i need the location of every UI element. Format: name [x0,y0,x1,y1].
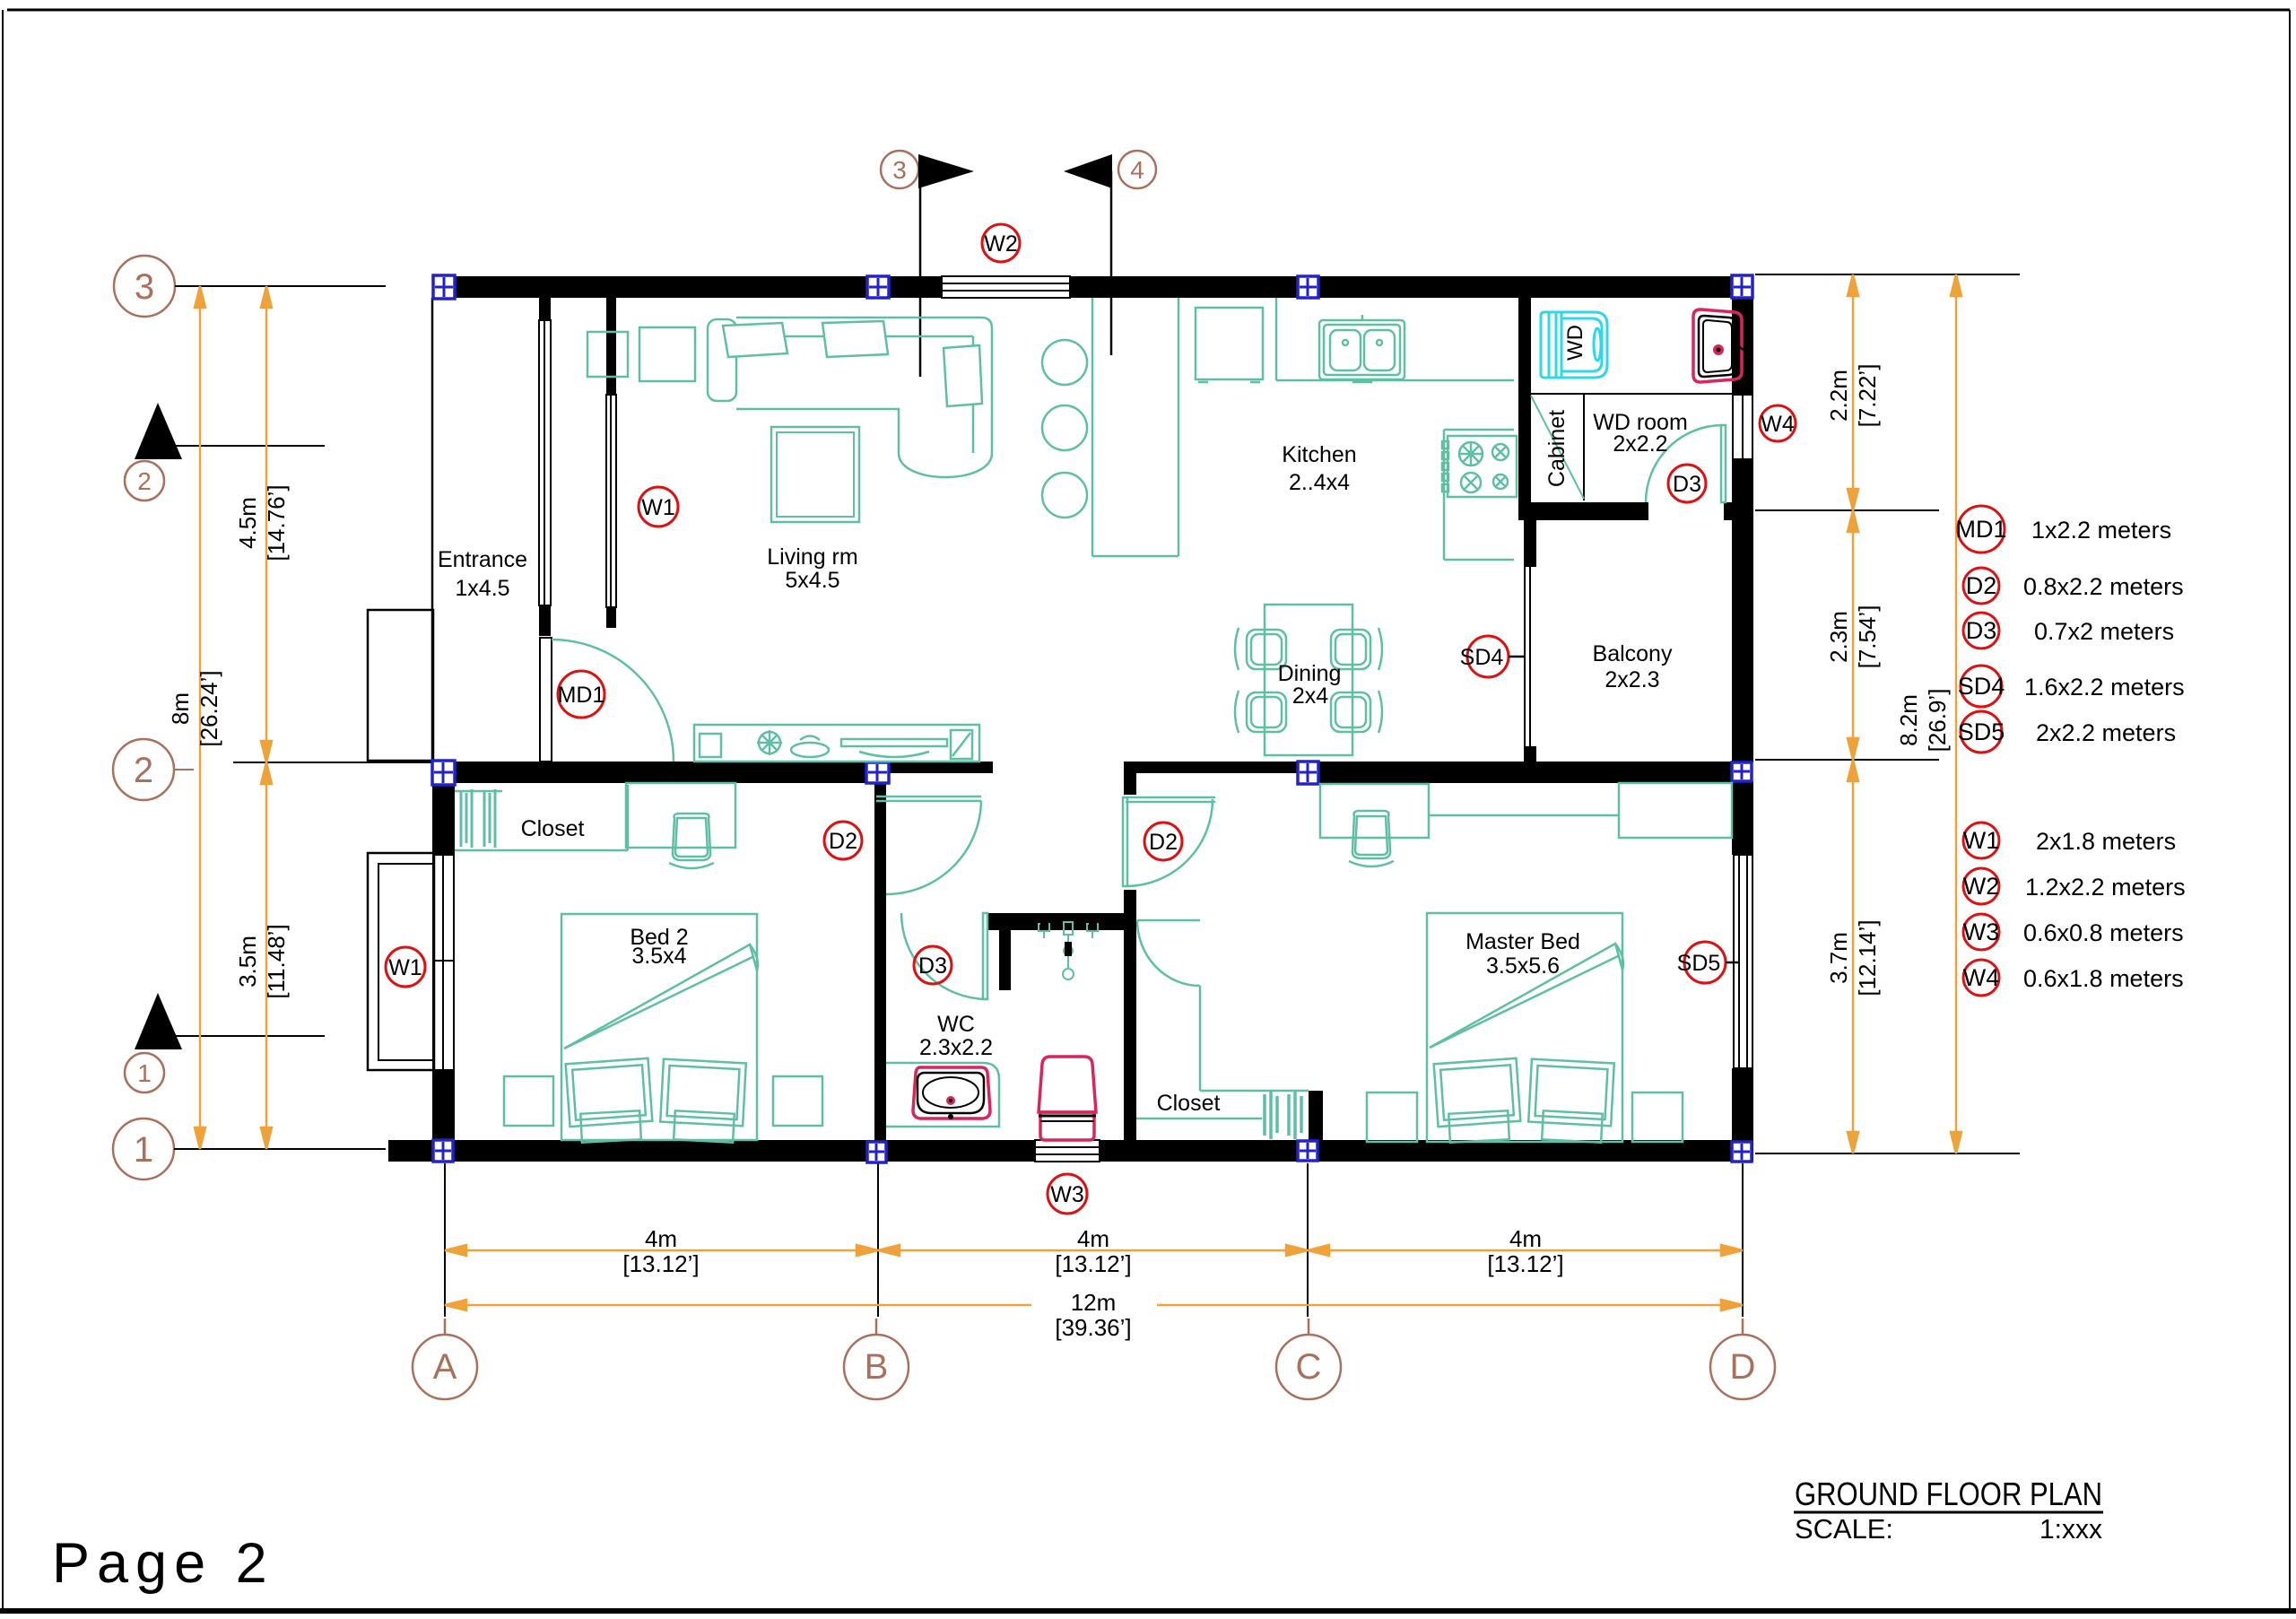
svg-text:0.6x0.8 meters: 0.6x0.8 meters [2023,919,2184,946]
svg-text:SD4: SD4 [1460,645,1504,670]
svg-text:2.3x2.2: 2.3x2.2 [919,1035,993,1060]
svg-text:0.6x1.8 meters: 0.6x1.8 meters [2023,965,2184,992]
svg-text:1x4.5: 1x4.5 [455,576,509,601]
svg-text:Entrance: Entrance [438,547,527,572]
svg-text:D3: D3 [1673,472,1701,497]
svg-text:2x4: 2x4 [1292,683,1328,709]
svg-text:Master Bed: Master Bed [1465,929,1580,954]
svg-text:1:xxx: 1:xxx [2039,1513,2102,1545]
svg-text:Cabinet: Cabinet [1544,410,1570,487]
svg-text:2: 2 [137,467,152,495]
svg-text:[14.76’]: [14.76’] [263,484,290,561]
svg-text:3.7m: 3.7m [1825,932,1852,984]
svg-text:W1: W1 [388,955,422,980]
svg-text:1x2.2 meters: 1x2.2 meters [2031,517,2171,544]
svg-text:D: D [1730,1347,1756,1387]
svg-text:W3: W3 [1963,918,2000,945]
svg-text:[7.54’]: [7.54’] [1854,605,1881,669]
svg-text:D2: D2 [829,829,857,854]
svg-text:0.8x2.2 meters: 0.8x2.2 meters [2023,573,2184,600]
svg-text:8m: 8m [167,692,194,725]
svg-text:[7.22’]: [7.22’] [1854,364,1881,428]
svg-text:[26.24’]: [26.24’] [196,670,222,746]
svg-text:4m: 4m [1509,1225,1542,1252]
svg-text:D3: D3 [1966,617,1997,644]
svg-text:3.5x4: 3.5x4 [631,944,686,969]
svg-text:C: C [1296,1347,1322,1387]
svg-text:3.5m: 3.5m [234,936,261,988]
svg-text:W3: W3 [1050,1182,1084,1207]
svg-text:SD5: SD5 [1677,951,1721,976]
svg-text:SD5: SD5 [1958,718,2005,745]
svg-text:1: 1 [137,1059,152,1087]
svg-text:Closet: Closet [521,816,585,841]
svg-text:2.3m: 2.3m [1825,611,1852,663]
svg-text:MD1: MD1 [1955,516,2006,543]
svg-text:Page 2: Page 2 [52,1532,274,1595]
svg-text:MD1: MD1 [558,683,605,708]
svg-text:W4: W4 [1963,964,2000,991]
svg-text:[13.12’]: [13.12’] [1487,1250,1563,1277]
svg-text:W1: W1 [641,495,675,520]
svg-text:2x2.2: 2x2.2 [1613,431,1667,457]
svg-text:12m: 12m [1071,1289,1117,1316]
svg-text:W1: W1 [1963,827,2000,854]
svg-text:[26.9’]: [26.9’] [1924,689,1951,753]
svg-text:4.5m: 4.5m [234,497,261,549]
svg-text:D3: D3 [918,953,947,979]
svg-text:Living rm: Living rm [767,544,857,570]
svg-text:2..4x4: 2..4x4 [1289,470,1350,495]
svg-text:2: 2 [134,751,153,790]
svg-text:W2: W2 [984,231,1018,257]
svg-text:1: 1 [134,1130,153,1170]
svg-text:WC: WC [937,1012,975,1037]
svg-text:1.2x2.2 meters: 1.2x2.2 meters [2025,874,2186,901]
svg-text:Closet: Closet [1157,1091,1221,1116]
svg-text:2.2m: 2.2m [1825,370,1852,422]
svg-text:8.2m: 8.2m [1895,694,1922,746]
svg-text:W2: W2 [1963,873,2000,900]
svg-text:3.5x5.6: 3.5x5.6 [1486,953,1560,979]
svg-text:W4: W4 [1761,412,1795,437]
svg-text:[12.14’]: [12.14’] [1854,919,1881,996]
svg-text:4m: 4m [1077,1225,1109,1252]
svg-text:5x4.5: 5x4.5 [785,568,839,593]
svg-text:2x2.2 meters: 2x2.2 meters [2036,719,2176,746]
svg-text:A: A [433,1347,457,1387]
svg-text:0.7x2 meters: 0.7x2 meters [2034,618,2174,645]
svg-text:D2: D2 [1149,830,1178,855]
svg-text:WD: WD [1563,325,1587,361]
svg-text:D2: D2 [1966,572,1997,599]
svg-text:2x1.8 meters: 2x1.8 meters [2036,828,2176,855]
svg-text:Balcony: Balcony [1593,641,1673,666]
svg-text:1.6x2.2 meters: 1.6x2.2 meters [2024,674,2185,701]
svg-text:[13.12’]: [13.12’] [622,1250,699,1277]
svg-text:Kitchen: Kitchen [1282,442,1356,467]
svg-text:SD4: SD4 [1958,673,2005,700]
svg-text:[39.36’]: [39.36’] [1055,1314,1131,1341]
svg-text:4m: 4m [645,1225,677,1252]
svg-text:SCALE:: SCALE: [1795,1513,1893,1545]
svg-text:[13.12’]: [13.12’] [1055,1250,1131,1277]
svg-text:GROUND FLOOR PLAN: GROUND FLOOR PLAN [1795,1475,2102,1512]
svg-text:B: B [865,1347,889,1387]
svg-text:2x2.3: 2x2.3 [1605,667,1659,692]
svg-text:Dining: Dining [1278,661,1342,686]
svg-text:[11.48’]: [11.48’] [263,924,290,998]
svg-text:3: 3 [892,156,907,184]
svg-text:3: 3 [135,267,154,307]
svg-text:4: 4 [1130,156,1144,184]
